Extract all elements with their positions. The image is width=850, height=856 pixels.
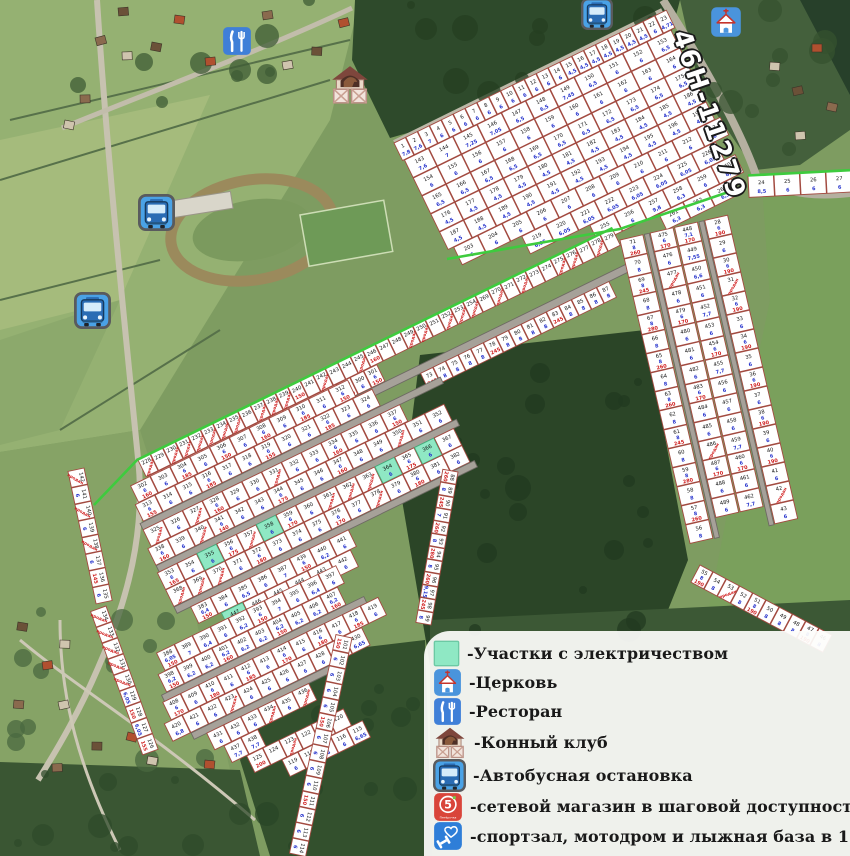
svg-text:Пятёрочка: Пятёрочка	[440, 815, 457, 819]
legend-row-electric: -Участки с электричеством	[433, 639, 846, 668]
horse-club-icon	[433, 726, 467, 760]
store-icon: 5Пятёрочка	[433, 792, 463, 822]
section-ne-tail: 248,5256266276	[748, 170, 850, 197]
bus-stop-map-icon[interactable]	[138, 194, 175, 231]
svg-text:5: 5	[444, 798, 452, 811]
restaurant-map-icon[interactable]	[222, 26, 252, 56]
legend-label: -Участки с электричеством	[467, 644, 728, 663]
legend-row-horse-club: -Конный клуб	[433, 726, 846, 759]
legend-row-church: -Церковь	[433, 668, 846, 697]
legend-label: -сетевой магазин в шаговой доступности	[470, 797, 850, 816]
plot-area: 8,5	[757, 189, 767, 195]
legend-row-sport: -спортзал, мотодром и лыжная база в 15ми…	[433, 821, 846, 851]
church-map-icon[interactable]	[710, 6, 742, 38]
legend-label: -Церковь	[469, 673, 557, 692]
restaurant-icon	[433, 697, 462, 726]
legend-label: -Ресторан	[469, 702, 562, 721]
legend-row-bus-stop: -Автобусная остановка	[433, 759, 846, 791]
bus-stop-map-icon[interactable]	[581, 0, 613, 30]
bus-stop-icon	[433, 759, 466, 792]
legend-panel: -Участки с электричеством -Церковь -Рест…	[424, 631, 850, 856]
map-canvas[interactable]: 17,827,637465666768696106116126136146154…	[0, 0, 850, 856]
legend-row-store: 5Пятёрочка -сетевой магазин в шаговой до…	[433, 792, 846, 822]
bus-stop-map-icon[interactable]	[74, 292, 111, 329]
legend-label: -Автобусная остановка	[473, 766, 693, 785]
plot-number: 24	[758, 180, 766, 186]
legend-row-restaurant: -Ресторан	[433, 697, 846, 726]
plot-number: 26	[810, 177, 817, 183]
church-icon	[433, 668, 462, 697]
horse-club-map-icon[interactable]	[329, 64, 371, 106]
plot-number: 27	[836, 176, 843, 182]
legend-label: -спортзал, мотодром и лыжная база в 15ми…	[470, 827, 850, 846]
sport-icon	[433, 821, 463, 851]
electric-plot-swatch	[433, 640, 460, 667]
legend-label: -Конный клуб	[474, 733, 608, 752]
plot-number: 25	[784, 179, 791, 185]
